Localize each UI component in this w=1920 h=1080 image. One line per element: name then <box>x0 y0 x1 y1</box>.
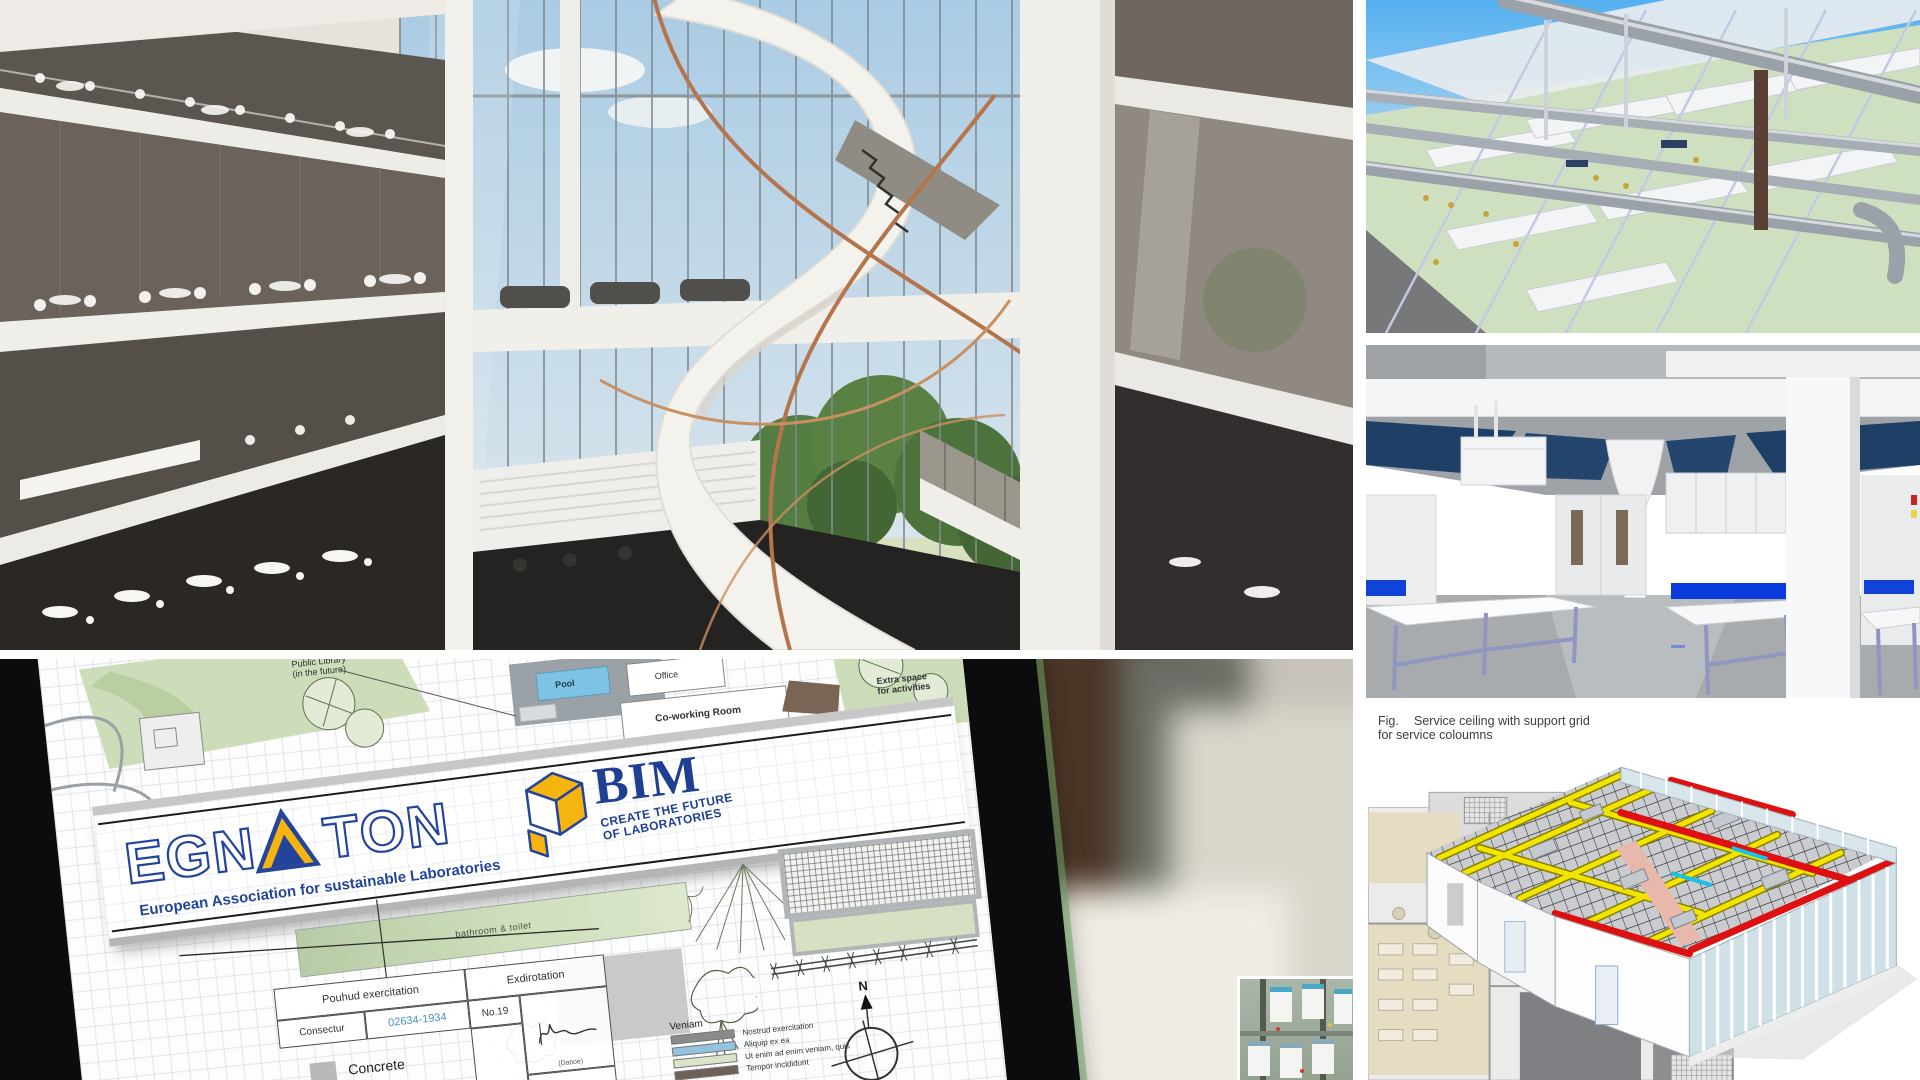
lab-interior-render <box>1366 345 1920 698</box>
concrete-swatch <box>309 1061 337 1080</box>
caption-text-2: for service coloumns <box>1378 728 1618 742</box>
mep-model-render <box>1366 0 1920 333</box>
foreground-column <box>1786 351 1856 698</box>
atrium-render <box>0 0 1353 650</box>
mep-illustration <box>1366 0 1920 333</box>
pinboard-rail <box>1240 1031 1353 1036</box>
service-grid-render <box>1366 752 1920 1080</box>
yellow-pin-icon <box>1328 1023 1332 1027</box>
figure-caption: Fig.Service ceiling with support grid fo… <box>1378 714 1618 742</box>
siteplan-photo: Public Library (in the future) Pool Offi… <box>0 659 1353 1080</box>
concrete-label: Concrete <box>347 1056 405 1078</box>
tablet-screen: Public Library (in the future) Pool Offi… <box>35 659 1011 1080</box>
caption-fig-label: Fig. <box>1378 714 1414 728</box>
signature-cell-1: (Datioe) <box>519 986 615 1075</box>
caption-line-1: Fig.Service ceiling with support grid <box>1378 714 1618 728</box>
red-pin-icon <box>1300 1069 1304 1073</box>
legend-concrete: Concrete <box>309 1054 405 1080</box>
pinned-paper <box>1334 989 1352 1024</box>
pinned-paper <box>1248 1041 1270 1076</box>
pinned-paper <box>1312 1039 1334 1074</box>
pinboard-inset <box>1237 976 1353 1080</box>
north-label: N <box>858 978 869 994</box>
lab-illustration <box>1366 345 1920 698</box>
pinned-paper <box>1302 984 1324 1019</box>
vertical-duct <box>1754 70 1768 230</box>
collage-canvas: Fig.Service ceiling with support grid fo… <box>0 0 1920 1080</box>
service-grid-illustration <box>1366 752 1920 1080</box>
atrium-illustration <box>0 0 1353 650</box>
signature-icon <box>530 1007 604 1054</box>
caption-text-1: Service ceiling with support grid <box>1414 714 1590 728</box>
pinned-paper <box>1280 1043 1302 1078</box>
pinned-paper <box>1270 987 1292 1022</box>
red-pin-icon <box>1276 1027 1280 1031</box>
